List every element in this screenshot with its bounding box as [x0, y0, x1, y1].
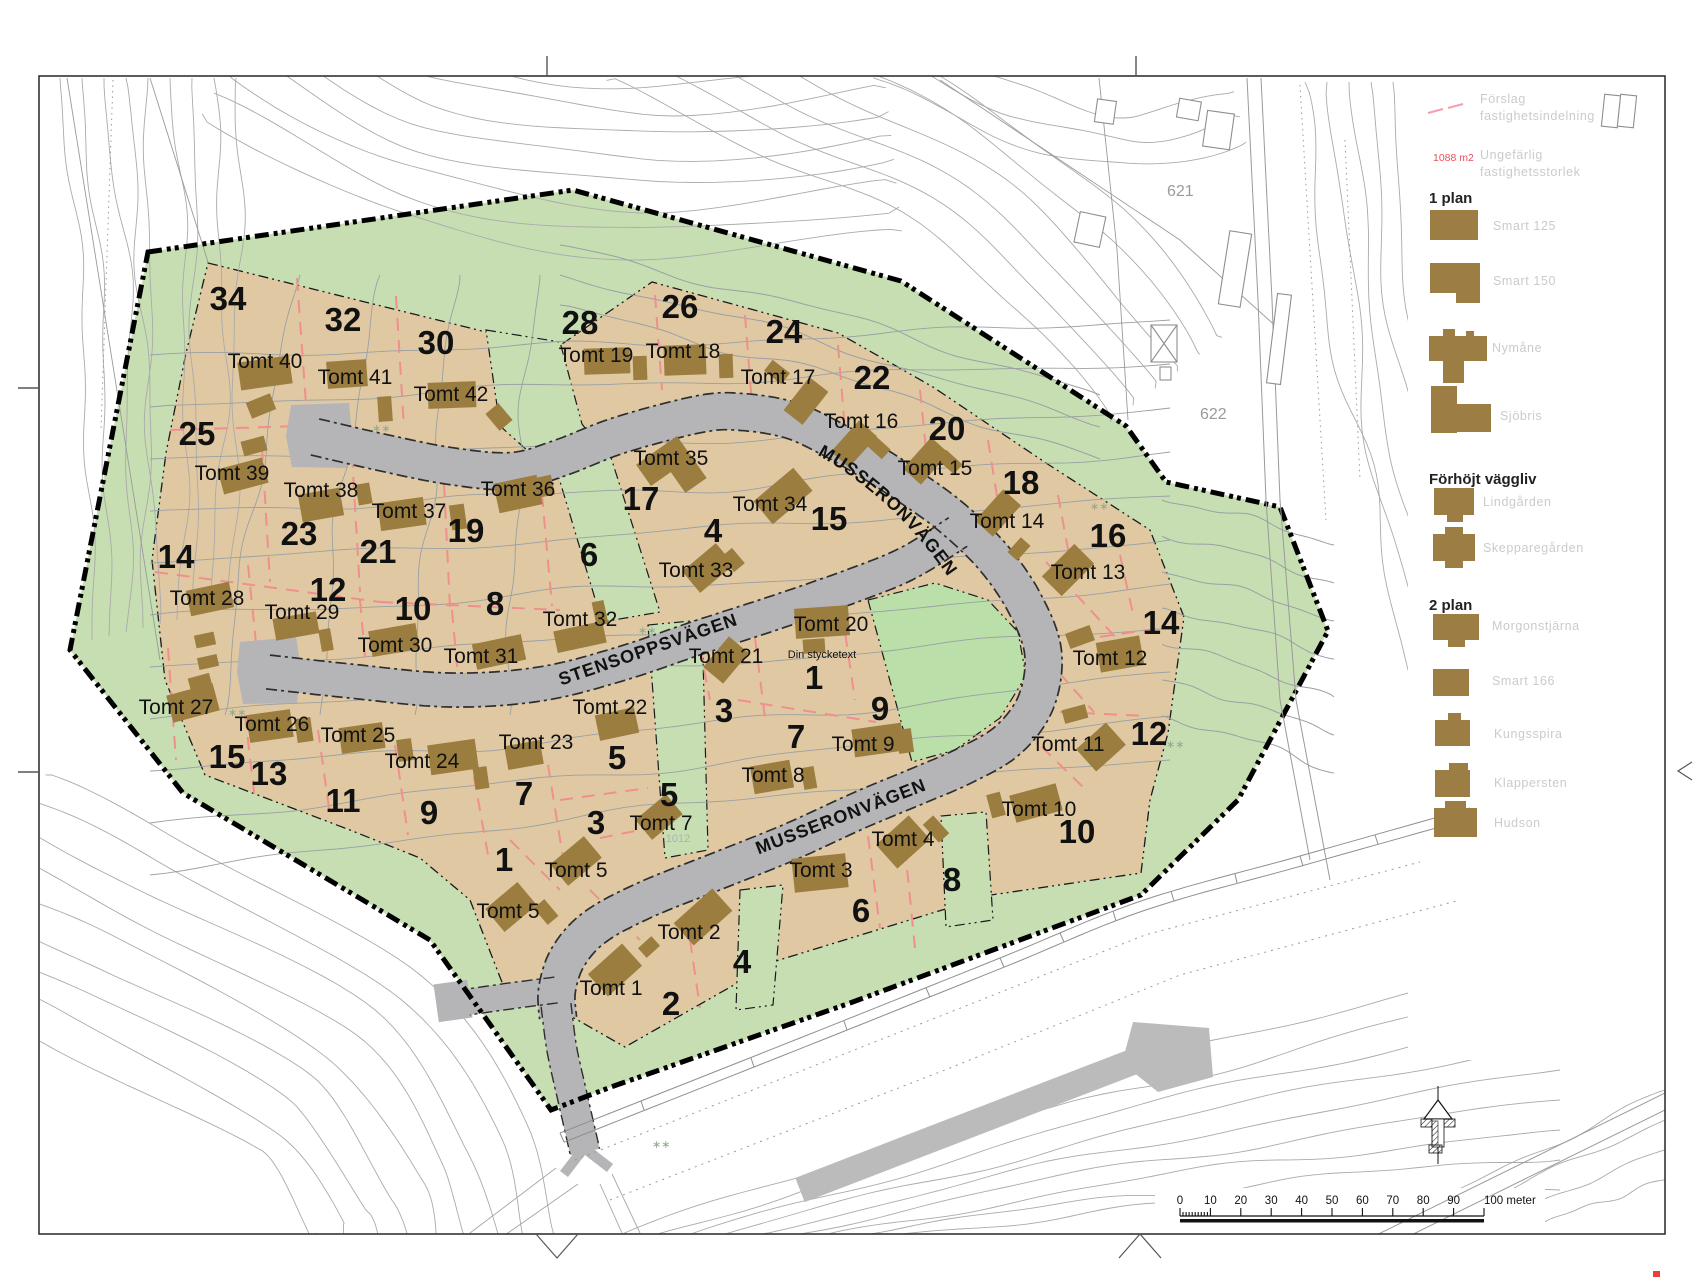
svg-text:Tomt 31: Tomt 31 [444, 645, 519, 668]
svg-text:Ungefärlig: Ungefärlig [1480, 148, 1543, 162]
svg-text:1012: 1012 [666, 833, 690, 845]
svg-text:19: 19 [448, 512, 485, 549]
svg-text:1088 m2: 1088 m2 [1433, 152, 1474, 164]
svg-text:0: 0 [1177, 1195, 1183, 1207]
svg-text:4: 4 [704, 512, 723, 549]
svg-text:Tomt 19: Tomt 19 [559, 344, 634, 367]
svg-text:Tomt 23: Tomt 23 [499, 731, 574, 754]
svg-text:10: 10 [395, 590, 432, 627]
svg-text:10: 10 [1204, 1195, 1217, 1207]
svg-text:∗∗: ∗∗ [1166, 739, 1184, 751]
svg-text:20: 20 [929, 410, 966, 447]
svg-text:15: 15 [209, 738, 246, 775]
svg-text:15: 15 [811, 500, 848, 537]
svg-text:∗∗: ∗∗ [638, 625, 656, 637]
svg-text:Tomt 29: Tomt 29 [265, 601, 340, 624]
svg-text:Tomt 16: Tomt 16 [824, 410, 899, 433]
svg-text:Tomt 36: Tomt 36 [481, 478, 556, 501]
svg-text:Lindgården: Lindgården [1483, 495, 1552, 509]
svg-text:25: 25 [179, 415, 216, 452]
svg-text:Tomt 40: Tomt 40 [228, 350, 303, 373]
svg-text:7: 7 [787, 718, 805, 755]
svg-text:1 plan: 1 plan [1429, 190, 1472, 207]
svg-text:3: 3 [587, 804, 605, 841]
svg-text:fastighetsstorlek: fastighetsstorlek [1480, 165, 1581, 179]
svg-text:5: 5 [608, 739, 626, 776]
svg-text:Tomt 25: Tomt 25 [321, 724, 396, 747]
svg-text:40: 40 [1295, 1195, 1308, 1207]
svg-text:Smart 125: Smart 125 [1493, 219, 1556, 233]
svg-text:Förslag: Förslag [1480, 92, 1526, 106]
svg-text:50: 50 [1326, 1195, 1339, 1207]
svg-text:Tomt 14: Tomt 14 [970, 510, 1045, 533]
svg-text:17: 17 [623, 480, 660, 517]
svg-text:Kungsspira: Kungsspira [1494, 727, 1563, 741]
svg-text:8: 8 [943, 861, 961, 898]
svg-text:30: 30 [418, 324, 455, 361]
svg-text:Tomt 39: Tomt 39 [195, 462, 270, 485]
svg-text:Tomt 1: Tomt 1 [579, 977, 642, 1000]
svg-text:Sjöbris: Sjöbris [1500, 409, 1542, 423]
svg-text:Smart 150: Smart 150 [1493, 274, 1556, 288]
svg-text:Tomt 33: Tomt 33 [659, 559, 734, 582]
svg-text:∗∗: ∗∗ [228, 707, 246, 719]
svg-text:Tomt 18: Tomt 18 [646, 340, 721, 363]
svg-text:Tomt 5: Tomt 5 [476, 900, 539, 923]
svg-text:20: 20 [1234, 1195, 1247, 1207]
svg-text:34: 34 [210, 280, 247, 317]
svg-text:6: 6 [852, 892, 870, 929]
svg-text:Din stycketext: Din stycketext [788, 649, 856, 661]
svg-text:80: 80 [1417, 1195, 1430, 1207]
svg-text:6: 6 [580, 536, 598, 573]
svg-text:100 meter: 100 meter [1484, 1195, 1536, 1207]
svg-text:90: 90 [1447, 1195, 1460, 1207]
svg-text:Smart 166: Smart 166 [1492, 674, 1555, 688]
svg-text:23: 23 [281, 515, 318, 552]
svg-text:12: 12 [1131, 715, 1168, 752]
svg-text:Tomt 9: Tomt 9 [831, 733, 894, 756]
svg-text:Tomt 13: Tomt 13 [1051, 561, 1126, 584]
svg-text:Tomt 22: Tomt 22 [573, 696, 648, 719]
svg-text:∗∗: ∗∗ [652, 1139, 670, 1151]
svg-text:Tomt 11: Tomt 11 [1031, 733, 1104, 756]
svg-text:Tomt 7: Tomt 7 [629, 812, 692, 835]
svg-text:Tomt 41: Tomt 41 [318, 366, 393, 389]
svg-text:Tomt 34: Tomt 34 [733, 493, 808, 516]
svg-text:30: 30 [1265, 1195, 1278, 1207]
svg-text:22: 22 [854, 359, 891, 396]
svg-text:28: 28 [562, 304, 599, 341]
svg-text:Tomt 32: Tomt 32 [543, 608, 618, 631]
svg-text:70: 70 [1386, 1195, 1399, 1207]
svg-text:Tomt 21: Tomt 21 [689, 645, 764, 668]
svg-text:24: 24 [766, 313, 803, 350]
svg-text:9: 9 [871, 690, 889, 727]
svg-text:Morgonstjärna: Morgonstjärna [1492, 619, 1580, 633]
svg-text:Tomt 17: Tomt 17 [741, 366, 816, 389]
svg-text:fastighetsindelning: fastighetsindelning [1480, 109, 1595, 123]
svg-text:16: 16 [1090, 517, 1127, 554]
svg-text:Tomt 42: Tomt 42 [414, 383, 489, 406]
svg-text:Tomt 12: Tomt 12 [1073, 647, 1148, 670]
svg-text:18: 18 [1003, 464, 1040, 501]
svg-text:7: 7 [515, 775, 533, 812]
svg-text:Tomt 8: Tomt 8 [741, 764, 804, 787]
svg-text:26: 26 [662, 288, 699, 325]
svg-text:Tomt 4: Tomt 4 [871, 828, 934, 851]
svg-text:Tomt 24: Tomt 24 [385, 750, 460, 773]
svg-text:Tomt 10: Tomt 10 [1002, 798, 1077, 821]
svg-text:11: 11 [326, 782, 361, 819]
svg-text:32: 32 [325, 301, 362, 338]
svg-text:9: 9 [420, 794, 438, 831]
svg-text:60: 60 [1356, 1195, 1369, 1207]
svg-text:Klappersten: Klappersten [1494, 776, 1567, 790]
svg-text:Tomt 15: Tomt 15 [898, 457, 973, 480]
svg-text:Tomt 27: Tomt 27 [139, 696, 214, 719]
svg-text:14: 14 [158, 538, 195, 575]
svg-text:3: 3 [715, 692, 733, 729]
svg-text:2 plan: 2 plan [1429, 597, 1472, 614]
svg-text:Tomt 38: Tomt 38 [284, 479, 359, 502]
svg-text:Hudson: Hudson [1494, 816, 1541, 830]
svg-text:∗∗: ∗∗ [1090, 501, 1108, 513]
svg-text:Tomt 37: Tomt 37 [372, 500, 447, 523]
svg-text:14: 14 [1143, 604, 1180, 641]
svg-text:8: 8 [486, 585, 504, 622]
svg-text:4: 4 [733, 943, 752, 980]
svg-text:621: 621 [1167, 183, 1194, 200]
svg-text:Tomt 30: Tomt 30 [358, 634, 433, 657]
svg-text:622: 622 [1200, 406, 1227, 423]
svg-text:Tomt 3: Tomt 3 [789, 859, 852, 882]
svg-text:21: 21 [360, 533, 397, 570]
svg-text:∗∗: ∗∗ [372, 423, 390, 435]
svg-text:13: 13 [251, 755, 288, 792]
svg-text:1: 1 [495, 841, 513, 878]
svg-text:2: 2 [662, 985, 680, 1022]
svg-text:Tomt 28: Tomt 28 [170, 587, 245, 610]
svg-text:Tomt 20: Tomt 20 [794, 613, 869, 636]
svg-text:5: 5 [660, 776, 678, 813]
svg-text:Tomt 5: Tomt 5 [544, 859, 607, 882]
svg-text:Skepparegården: Skepparegården [1483, 541, 1584, 555]
svg-text:Förhöjt väggliv: Förhöjt väggliv [1429, 471, 1537, 488]
svg-text:Tomt 35: Tomt 35 [634, 447, 709, 470]
svg-text:Tomt 2: Tomt 2 [657, 921, 720, 944]
svg-text:Nymåne: Nymåne [1492, 341, 1542, 355]
svg-text:1: 1 [805, 659, 823, 696]
